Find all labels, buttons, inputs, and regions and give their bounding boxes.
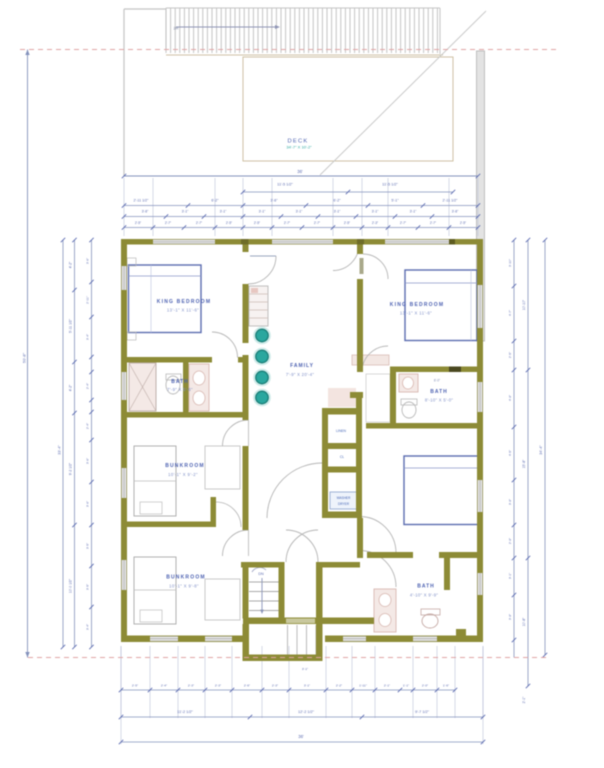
svg-text:FAMILY: FAMILY: [290, 363, 314, 369]
svg-text:36': 36': [297, 169, 303, 174]
svg-text:2'-5": 2'-5": [132, 684, 138, 688]
svg-text:2'-7": 2'-7": [400, 221, 406, 225]
svg-text:3'-4": 3'-4": [86, 624, 90, 630]
svg-text:12'-2 1/2": 12'-2 1/2": [298, 710, 315, 714]
svg-text:LINEN: LINEN: [336, 429, 347, 433]
svg-text:2'-11": 2'-11": [86, 296, 90, 304]
svg-text:3'-10": 3'-10": [508, 259, 512, 267]
svg-text:BATH: BATH: [417, 584, 435, 590]
svg-text:4'-10" X 9'-9": 4'-10" X 9'-9": [410, 593, 439, 598]
svg-text:11'-5 1/2": 11'-5 1/2": [277, 183, 293, 187]
svg-text:2'-9": 2'-9": [508, 538, 512, 544]
svg-text:10'-8": 10'-8": [522, 617, 526, 626]
svg-text:3'-6": 3'-6": [452, 210, 460, 214]
svg-text:7'-9" X 5'-6": 7'-9" X 5'-6": [167, 387, 193, 392]
svg-text:2'-3": 2'-3": [215, 684, 221, 688]
svg-text:3'-1": 3'-1": [296, 210, 304, 214]
svg-text:2'-2": 2'-2": [336, 684, 342, 688]
svg-text:KING BEDROOM: KING BEDROOM: [157, 299, 211, 305]
svg-text:13'-1" X 11'-6": 13'-1" X 11'-6": [400, 311, 432, 316]
svg-text:3'-1": 3'-1": [302, 667, 308, 671]
svg-text:10'-1" X 9'-2": 10'-1" X 9'-2": [168, 472, 198, 477]
svg-text:3'-1": 3'-1": [220, 210, 228, 214]
svg-text:2'-7": 2'-7": [284, 221, 290, 225]
svg-text:11'-5 1/2": 11'-5 1/2": [382, 183, 398, 187]
svg-text:3'-1": 3'-1": [410, 210, 418, 214]
svg-text:3'-1": 3'-1": [182, 210, 190, 214]
svg-text:10'-1" X 9'-8": 10'-1" X 9'-8": [169, 584, 199, 589]
svg-text:3'-6": 3'-6": [86, 258, 90, 264]
svg-text:34'-4": 34'-4": [539, 445, 543, 455]
svg-text:2R: 2R: [173, 26, 178, 31]
svg-text:6'-2": 6'-2": [211, 199, 219, 203]
svg-text:KING BEDROOM: KING BEDROOM: [390, 302, 444, 308]
svg-text:13'-1" X 11'-6": 13'-1" X 11'-6": [167, 308, 199, 313]
svg-text:2'-1": 2'-1": [522, 696, 526, 704]
svg-text:2'-4": 2'-4": [161, 684, 167, 688]
svg-text:2'-5": 2'-5": [254, 221, 260, 225]
svg-text:4'-7": 4'-7": [508, 310, 512, 316]
svg-text:3'-5": 3'-5": [86, 543, 90, 549]
svg-text:BATH: BATH: [171, 379, 189, 385]
svg-text:BATH: BATH: [430, 389, 448, 395]
svg-text:1'-6": 1'-6": [443, 684, 449, 688]
svg-text:34'-7" X 10'-2": 34'-7" X 10'-2": [286, 145, 312, 150]
svg-text:3'-4": 3'-4": [86, 334, 90, 340]
svg-text:3'-6": 3'-6": [86, 501, 90, 507]
svg-text:2'-11 1/2": 2'-11 1/2": [443, 199, 459, 203]
svg-text:6'-0": 6'-0": [434, 379, 440, 383]
svg-text:BUNKROOM: BUNKROOM: [166, 575, 206, 581]
svg-text:4'-2": 4'-2": [69, 384, 73, 392]
svg-text:5'-1": 5'-1": [391, 199, 399, 203]
svg-text:3'-1": 3'-1": [304, 684, 310, 688]
svg-text:2'-5": 2'-5": [344, 221, 350, 225]
svg-text:10'-0 1/2": 10'-0 1/2": [69, 578, 73, 593]
svg-text:3'-1": 3'-1": [372, 210, 380, 214]
svg-text:3'-1": 3'-1": [259, 210, 267, 214]
svg-text:2'-7": 2'-7": [314, 221, 320, 225]
svg-text:2'-5": 2'-5": [508, 352, 512, 358]
svg-text:5'-11 1/2": 5'-11 1/2": [69, 318, 73, 333]
svg-text:2'-5": 2'-5": [135, 221, 141, 225]
svg-text:33'-4": 33'-4": [58, 445, 62, 455]
svg-text:3'-6": 3'-6": [142, 210, 150, 214]
svg-text:8'-10" X 5'-0": 8'-10" X 5'-0": [425, 398, 454, 403]
svg-text:6'-2": 6'-2": [333, 199, 341, 203]
svg-text:2'-11 1/2": 2'-11 1/2": [134, 199, 150, 203]
svg-text:50'-8": 50'-8": [22, 352, 27, 363]
svg-text:2'-7": 2'-7": [196, 221, 202, 225]
svg-text:2'-1": 2'-1": [384, 684, 390, 688]
svg-text:3'-1": 3'-1": [508, 573, 512, 579]
svg-text:BUNKROOM: BUNKROOM: [165, 463, 205, 469]
svg-text:15'-8": 15'-8": [522, 459, 526, 468]
svg-text:10'-10": 10'-10": [522, 299, 526, 310]
svg-text:2'-5": 2'-5": [460, 221, 466, 225]
svg-text:3'-1": 3'-1": [334, 210, 342, 214]
svg-text:7'-9" X 20'-4": 7'-9" X 20'-4": [286, 372, 315, 377]
svg-text:4'-2": 4'-2": [69, 261, 73, 269]
svg-text:CL: CL: [340, 455, 344, 459]
svg-text:2'-4": 2'-4": [86, 423, 90, 429]
svg-text:4'-5": 4'-5": [508, 450, 512, 456]
svg-text:WASHER: WASHER: [337, 496, 352, 500]
svg-text:3'-9": 3'-9": [508, 614, 512, 620]
svg-text:11'-2 1/2": 11'-2 1/2": [177, 710, 193, 714]
svg-text:1'-1": 1'-1": [403, 684, 409, 688]
svg-text:2'-7": 2'-7": [165, 221, 171, 225]
svg-text:2'-7": 2'-7": [430, 221, 436, 225]
svg-text:3'-5": 3'-5": [86, 584, 90, 590]
svg-text:2'-0": 2'-0": [422, 684, 428, 688]
svg-text:3'-9": 3'-9": [508, 499, 512, 505]
svg-text:3'-6": 3'-6": [270, 199, 278, 203]
svg-text:2'-3": 2'-3": [372, 221, 378, 225]
svg-text:2'-5": 2'-5": [226, 221, 232, 225]
svg-text:2'-6": 2'-6": [244, 684, 250, 688]
svg-text:2'-3": 2'-3": [188, 684, 194, 688]
svg-text:9'-7 1/2": 9'-7 1/2": [415, 710, 430, 714]
svg-text:4'-9": 4'-9": [508, 395, 512, 401]
svg-text:DN: DN: [258, 572, 264, 576]
svg-text:2'-3": 2'-3": [272, 684, 278, 688]
svg-text:36': 36': [298, 734, 304, 739]
svg-text:2'-4": 2'-4": [86, 383, 90, 389]
svg-text:3'-6": 3'-6": [86, 458, 90, 464]
svg-text:DRYER: DRYER: [338, 502, 350, 506]
svg-text:9'-2 1/2": 9'-2 1/2": [69, 462, 73, 475]
svg-text:1'-11": 1'-11": [359, 684, 367, 688]
